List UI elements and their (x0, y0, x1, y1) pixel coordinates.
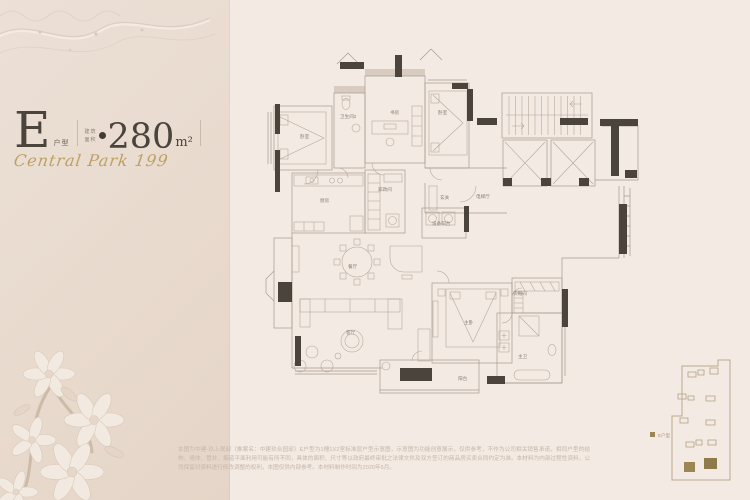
unit-suffix-label: 户型 (54, 138, 70, 148)
room-label-bathroom-2: 卫生间2 (340, 113, 357, 120)
divider (200, 120, 201, 146)
room-label-elevator-hall: 电梯厅 (476, 193, 490, 200)
left-panel: E 户型 建筑 面积 280 m² Central Park 199 (0, 0, 230, 500)
room-label-kitchen: 厨房 (320, 197, 330, 204)
site-keymap: E户型 (648, 352, 748, 492)
room-label-bedroom-2: 卧室 (300, 133, 310, 140)
floral-relief-icon (0, 262, 159, 500)
room-label-master-bath: 主卫 (518, 353, 528, 359)
room-label-bedroom-3: 卧室 (438, 109, 448, 116)
room-label-equipment-balcony: 设备阳台 (432, 220, 451, 227)
area-unit: m² (175, 135, 193, 150)
room-label-balcony: 阳台 (458, 375, 468, 382)
room-label-dining: 餐厅 (348, 263, 358, 270)
keymap-legend-label: E户型 (658, 432, 671, 439)
room-label-master-bedroom: 主卧 (464, 319, 474, 326)
bullet-dot-icon (99, 132, 106, 139)
floorplan: 卧室 卫生间2 书房 卧室 厨房 家政间 玄关 电梯厅 设备阳台 餐厅 客厅 主… (262, 46, 668, 408)
lace-ornament-icon (0, 0, 220, 85)
room-label-entry: 玄关 (440, 194, 450, 201)
room-label-living: 客厅 (346, 329, 356, 336)
brochure-page: E 户型 建筑 面积 280 m² Central Park 199 (0, 0, 750, 500)
room-label-closet: 衣帽间 (513, 290, 527, 297)
disclaimer-text: 本图为中建·玖上观邸（推案名：中建玖合园邸）E户型为1幢1X2室标准层户型示意图… (178, 446, 590, 474)
unit-letter: E (14, 110, 51, 151)
divider (77, 120, 78, 146)
room-label-housekeeping: 家政间 (378, 186, 392, 193)
keymap-legend-swatch (650, 432, 655, 437)
unit-title-block: E 户型 建筑 面积 280 m² (14, 110, 208, 151)
brand-script: Central Park 199 (13, 151, 170, 170)
area-value: 280 (108, 124, 175, 151)
area-prefix-label: 建筑 面积 (85, 129, 97, 144)
room-label-study: 书房 (390, 109, 400, 116)
